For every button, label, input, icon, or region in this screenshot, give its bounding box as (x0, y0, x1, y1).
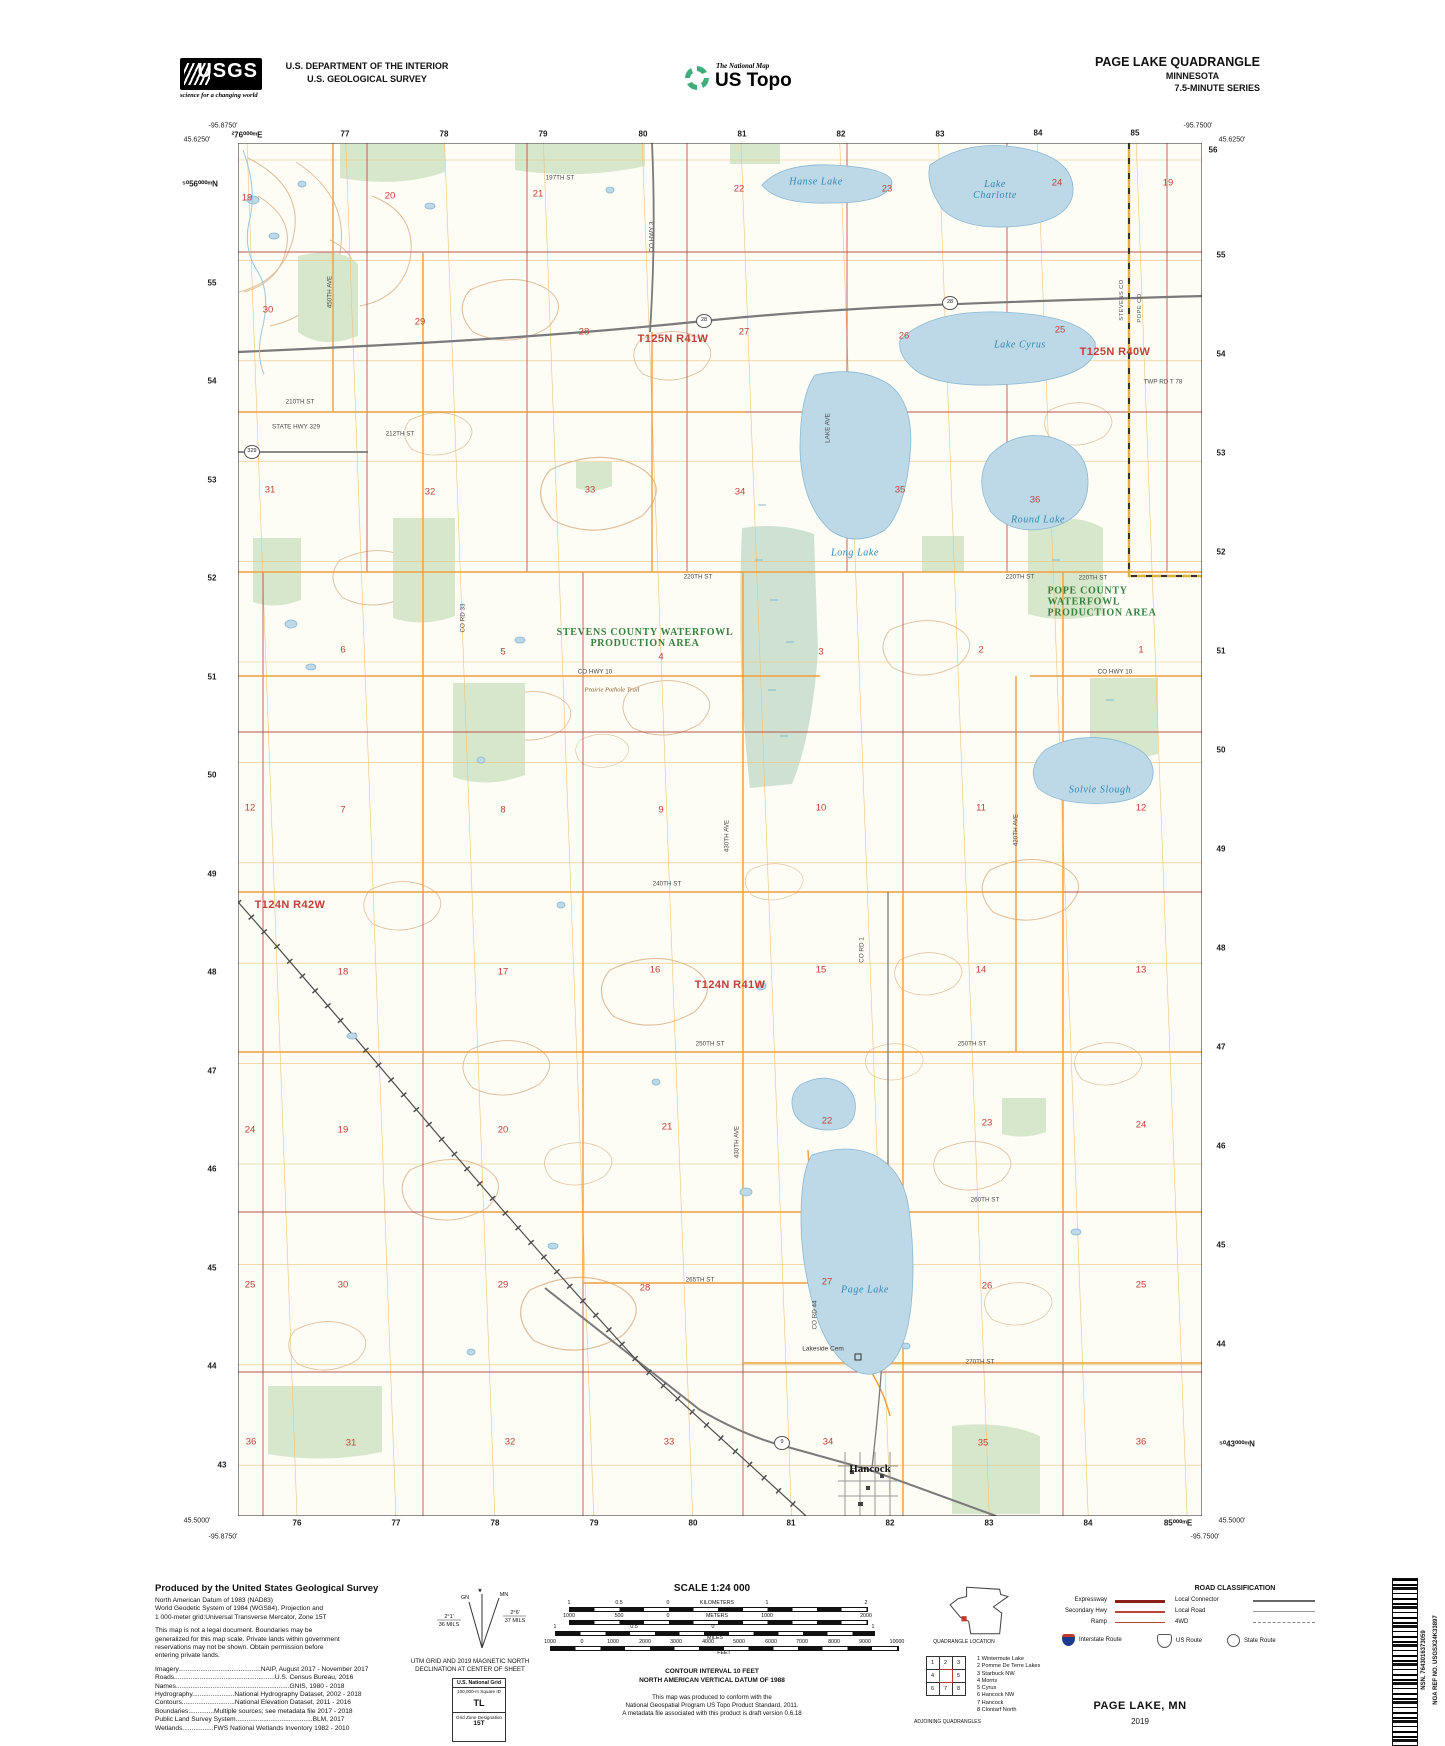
adjoining-cell-3: 3 (952, 1656, 966, 1670)
adjoining-cell-5: 5 (952, 1669, 966, 1683)
grid-label-85-e: 85⁰⁰⁰ᵐE (1164, 1519, 1192, 1528)
scale-tick: KILOMETERS (700, 1600, 734, 1606)
list-item: A metadata file associated with this pro… (562, 1710, 862, 1718)
usng-zone-label: Grid Zone Designation (453, 1712, 505, 1720)
grid-label-85: 85 (1131, 129, 1140, 138)
list-item: National Geospatial Program US Topo Prod… (562, 1702, 862, 1710)
produced-title: Produced by the United States Geological… (155, 1583, 427, 1594)
grid-label-56: 56 (1209, 146, 1218, 155)
grid-label-44: 44 (1217, 1340, 1226, 1349)
list-item: reservations may not be shown. Obtain pe… (155, 1644, 427, 1652)
grid-label-56-n: ⁵⁰56⁰⁰⁰ᵐN (182, 180, 218, 189)
grid-label-55: 55 (1217, 251, 1226, 260)
corner-label-45-5000: 45.5000' (1219, 1518, 1246, 1525)
grid-label-53: 53 (208, 476, 217, 485)
adjoining-cell-8: 8 (952, 1682, 966, 1696)
scale-tick: 1 (568, 1600, 571, 1606)
corner-label-95-7500: -95.7500' (1191, 1534, 1220, 1541)
adjoining-cell-4: 4 (926, 1669, 940, 1683)
road-class-sample-ramp (1115, 1622, 1165, 1623)
topo-map (238, 143, 1202, 1516)
declination-diagram: ★ GN MN 2°1' 36 MILS 2°6' 37 MILS (427, 1586, 527, 1656)
grid-label-51: 51 (1217, 647, 1226, 656)
road-class-label-secondary-hwy: Secondary Hwy (1055, 1608, 1107, 1614)
grid-label-82: 82 (886, 1519, 895, 1528)
list-item: 1 Wintermute Lake (977, 1656, 1087, 1663)
data-credits-lines: Imagery.................................… (155, 1666, 427, 1733)
grid-label-79: 79 (590, 1519, 599, 1528)
list-item: 4 Morris (977, 1678, 1087, 1685)
us-shield-icon (1157, 1634, 1172, 1648)
list-item: North American Datum of 1983 (NAD83) (155, 1597, 427, 1605)
quad-series: 7.5-MINUTE SERIES (1010, 83, 1260, 93)
grid-label-43-n: ⁵⁰43⁰⁰⁰ᵐN (1219, 1440, 1255, 1449)
shield-legend-item: Interstate Route (1062, 1634, 1122, 1646)
grid-label-79: 79 (539, 130, 548, 139)
scale-tick: 10000 (890, 1639, 905, 1645)
grid-label-45: 45 (208, 1264, 217, 1273)
scale-tick: 3000 (670, 1639, 682, 1645)
road-class-column-1: ExpresswaySecondary HwyRamp (1055, 1597, 1170, 1630)
scale-tick: 1 (554, 1624, 557, 1630)
scale-tick: 9000 (859, 1639, 871, 1645)
road-class-sample-local (1253, 1611, 1315, 1612)
road-class-column-2: Local ConnectorLocal Road4WD (1175, 1597, 1325, 1630)
grid-label-76-e: ²76⁰⁰⁰ᵐE (231, 131, 262, 140)
grid-label-47: 47 (1217, 1043, 1226, 1052)
quadrangle-title-block: PAGE LAKE QUADRANGLE MINNESOTA 7.5-MINUT… (1010, 55, 1260, 93)
scale-title: SCALE 1:24 000 (562, 1583, 862, 1594)
grid-label-82: 82 (837, 130, 846, 139)
grid-label-80: 80 (639, 130, 648, 139)
state-shield-icon (1227, 1634, 1240, 1647)
usgs-tagline: science for a changing world (180, 92, 300, 99)
usgs-topo-sheet: USGS science for a changing world U.S. D… (0, 0, 1445, 1746)
shield-legend-interstate-route: Interstate Route (1079, 1637, 1122, 1643)
scale-tick: 2000 (860, 1613, 872, 1619)
shield-legend-state-route: State Route (1244, 1638, 1276, 1644)
corner-label-45-6250: 45.6250' (1219, 137, 1246, 144)
scale-tick: 0 (712, 1624, 715, 1630)
contour-interval: CONTOUR INTERVAL 10 FEET (562, 1667, 862, 1676)
corner-label-45-5000: 45.5000' (184, 1518, 211, 1525)
list-item: Contours.............................Nat… (155, 1699, 427, 1707)
grid-label-84: 84 (1084, 1519, 1093, 1528)
shield-legend-item: US Route (1157, 1634, 1202, 1648)
scale-tick: 0 (667, 1613, 670, 1619)
scale-tick: 500 (615, 1613, 624, 1619)
scale-tick: METERS (706, 1613, 728, 1619)
grid-label-53: 53 (1217, 449, 1226, 458)
grid-label-83: 83 (985, 1519, 994, 1528)
grid-north-label: GN (461, 1595, 469, 1601)
dept-line1: U.S. DEPARTMENT OF THE INTERIOR (262, 60, 472, 73)
scale-tick: 2 (865, 1600, 868, 1606)
adjoining-cell-1: 1 (926, 1656, 940, 1670)
grid-label-48: 48 (208, 968, 217, 977)
ustopo-label: US Topo (715, 70, 792, 92)
vertical-datum: NORTH AMERICAN VERTICAL DATUM OF 1988 (562, 1676, 862, 1685)
grid-label-77: 77 (341, 130, 350, 139)
list-item: World Geodetic System of 1984 (WGS84). P… (155, 1605, 427, 1613)
scale-tick: 0 (667, 1600, 670, 1606)
usgs-logo: USGS (180, 58, 262, 90)
grid-label-51: 51 (208, 673, 217, 682)
usgs-logo-text: USGS (197, 60, 258, 83)
list-item: 2 Pomme De Terre Lakes (977, 1663, 1087, 1670)
true-north-star: ★ (478, 1587, 483, 1594)
department-heading: U.S. DEPARTMENT OF THE INTERIOR U.S. GEO… (262, 60, 472, 86)
adjoining-cell-7: 7 (939, 1682, 953, 1696)
shield-legend-us-route: US Route (1176, 1638, 1202, 1644)
shield-legend-item: State Route (1227, 1634, 1276, 1647)
quad-location-caption: QUADRANGLE LOCATION (918, 1639, 1010, 1645)
nga-ref-number: NGA REF NO. USGSX24K33897 (1433, 1615, 1439, 1704)
grid-label-81: 81 (738, 130, 747, 139)
usng-box: U.S. National Grid 100,000-m Square ID T… (452, 1678, 506, 1742)
scale-tick: 0.5 (630, 1624, 637, 1630)
road-class-sample-fourwd (1253, 1622, 1315, 1623)
corner-label-45-6250: 45.6250' (184, 137, 211, 144)
adjoining-cell-center (939, 1669, 953, 1683)
declination-caption: UTM GRID AND 2019 MAGNETIC NORTH DECLINA… (385, 1658, 555, 1674)
nsn-number: NSN. 7643016373059 (1421, 1630, 1427, 1689)
road-class-label-expressway: Expressway (1055, 1597, 1107, 1603)
scale-bar-0 (569, 1607, 868, 1612)
scale-tick: 1000 (607, 1639, 619, 1645)
quadrangle-location-map (948, 1586, 1010, 1636)
gn-mils: 36 MILS (439, 1622, 460, 1628)
road-class-sample-connector (1253, 1600, 1315, 1602)
grid-label-48: 48 (1217, 944, 1226, 953)
usng-square-label: 100,000-m Square ID (453, 1688, 505, 1694)
grid-label-54: 54 (1217, 350, 1226, 359)
usng-zone: 15T (453, 1720, 505, 1727)
scale-tick: 7000 (796, 1639, 808, 1645)
grid-label-47: 47 (208, 1067, 217, 1076)
quad-name: PAGE LAKE QUADRANGLE (1010, 55, 1260, 69)
national-map-label: The National Map (716, 62, 769, 70)
ustopo-swirl-icon (683, 64, 711, 92)
quad-location-marker (961, 1616, 966, 1621)
legal-lines: This map is not a legal document. Bounda… (155, 1627, 427, 1661)
list-item: Hydrography.......................Nation… (155, 1691, 427, 1699)
scale-tick: 0 (581, 1639, 584, 1645)
grid-label-50: 50 (1217, 746, 1226, 755)
gn-degrees: 2°1' (444, 1614, 453, 1620)
grid-label-49: 49 (208, 870, 217, 879)
grid-label-55: 55 (208, 279, 217, 288)
road-classification-title: ROAD CLASSIFICATION (1120, 1585, 1350, 1592)
scale-tick: 1000 (544, 1639, 556, 1645)
interstate-shield-icon (1062, 1634, 1075, 1646)
scale-tick: 6000 (765, 1639, 777, 1645)
scale-bar-1 (569, 1620, 868, 1625)
road-class-label-local-road: Local Road (1175, 1608, 1243, 1614)
road-class-sample-expressway (1115, 1600, 1165, 1603)
grid-label-46: 46 (1217, 1142, 1226, 1151)
grid-label-83: 83 (936, 130, 945, 139)
magnetic-north-label: MN (500, 1592, 509, 1598)
quad-state: MINNESOTA (1010, 71, 1260, 81)
scale-tick: 1 (766, 1600, 769, 1606)
grid-label-44: 44 (208, 1362, 217, 1371)
grid-label-43: 43 (218, 1461, 227, 1470)
scale-unit: FEET (717, 1650, 731, 1656)
grid-label-52: 52 (1217, 548, 1226, 557)
adjoining-caption: ADJOINING QUADRANGLES (900, 1719, 995, 1725)
scale-tick: 1 (872, 1624, 875, 1630)
adjoining-cell-2: 2 (939, 1656, 953, 1670)
list-item: 5 Cyrus (977, 1685, 1087, 1692)
scale-tick: 1000 (761, 1613, 773, 1619)
grid-label-78: 78 (491, 1519, 500, 1528)
usng-title: U.S. National Grid (453, 1679, 505, 1688)
list-item: generalized for this map scale. Private … (155, 1636, 427, 1644)
corner-label-95-8750: -95.8750' (209, 1534, 238, 1541)
scale-tick: 2000 (639, 1639, 651, 1645)
scale-tick: 0.5 (615, 1600, 622, 1606)
scale-tick: 1000 (563, 1613, 575, 1619)
list-item: Wetlands.................FWS National We… (155, 1725, 427, 1733)
grid-label-49: 49 (1217, 845, 1226, 854)
list-item: 1 000-meter grid:Universal Transverse Me… (155, 1614, 427, 1622)
list-item: 3 Starbuck NW (977, 1671, 1087, 1678)
grid-label-54: 54 (208, 377, 217, 386)
grid-label-78: 78 (440, 130, 449, 139)
road-class-label-ramp: Ramp (1055, 1619, 1107, 1625)
adjoining-quadrangles-grid: 12345678 (926, 1656, 965, 1695)
scale-tick: 8000 (828, 1639, 840, 1645)
mn-degrees: 2°6' (510, 1610, 519, 1616)
road-class-label-local-connector: Local Connector (1175, 1597, 1243, 1603)
corner-label-95-7500: -95.7500' (1184, 123, 1213, 130)
sheet-year: 2019 (1040, 1717, 1240, 1726)
dept-line2: U.S. GEOLOGICAL SURVEY (262, 73, 472, 86)
route-shield-legend: Interstate RouteUS RouteState Route (1062, 1634, 1362, 1650)
list-item: Public Land Survey System...............… (155, 1716, 427, 1724)
road-class-sample-secondary (1115, 1611, 1165, 1613)
list-item: Names...................................… (155, 1683, 427, 1691)
list-item: Roads...................................… (155, 1674, 427, 1682)
grid-label-77: 77 (392, 1519, 401, 1528)
grid-label-45: 45 (1217, 1241, 1226, 1250)
grid-label-84: 84 (1034, 129, 1043, 138)
conform-note: This map was produced to conform with th… (562, 1694, 862, 1718)
barcode (1392, 1578, 1418, 1746)
grid-label-76: 76 (293, 1519, 302, 1528)
sheet-name: PAGE LAKE, MN (1040, 1700, 1240, 1712)
road-class-label-4wd: 4WD (1175, 1619, 1243, 1625)
usng-square-id: TL (453, 1694, 505, 1712)
scale-tick: 5000 (733, 1639, 745, 1645)
grid-label-80: 80 (689, 1519, 698, 1528)
scale-tick: 4000 (702, 1639, 714, 1645)
corner-label-95-8750: -95.8750' (209, 123, 238, 130)
mn-mils: 37 MILS (505, 1618, 526, 1624)
grid-label-50: 50 (208, 771, 217, 780)
list-item: This map is not a legal document. Bounda… (155, 1627, 427, 1635)
datum-lines: North American Datum of 1983 (NAD83)Worl… (155, 1597, 427, 1622)
adjoining-cell-6: 6 (926, 1682, 940, 1696)
list-item: This map was produced to conform with th… (562, 1694, 862, 1702)
grid-label-81: 81 (787, 1519, 796, 1528)
list-item: 6 Hancock NW (977, 1692, 1087, 1699)
grid-label-46: 46 (208, 1165, 217, 1174)
grid-label-52: 52 (208, 574, 217, 583)
list-item: Boundaries..............Multiple sources… (155, 1708, 427, 1716)
scale-notes: CONTOUR INTERVAL 10 FEET NORTH AMERICAN … (562, 1667, 862, 1718)
